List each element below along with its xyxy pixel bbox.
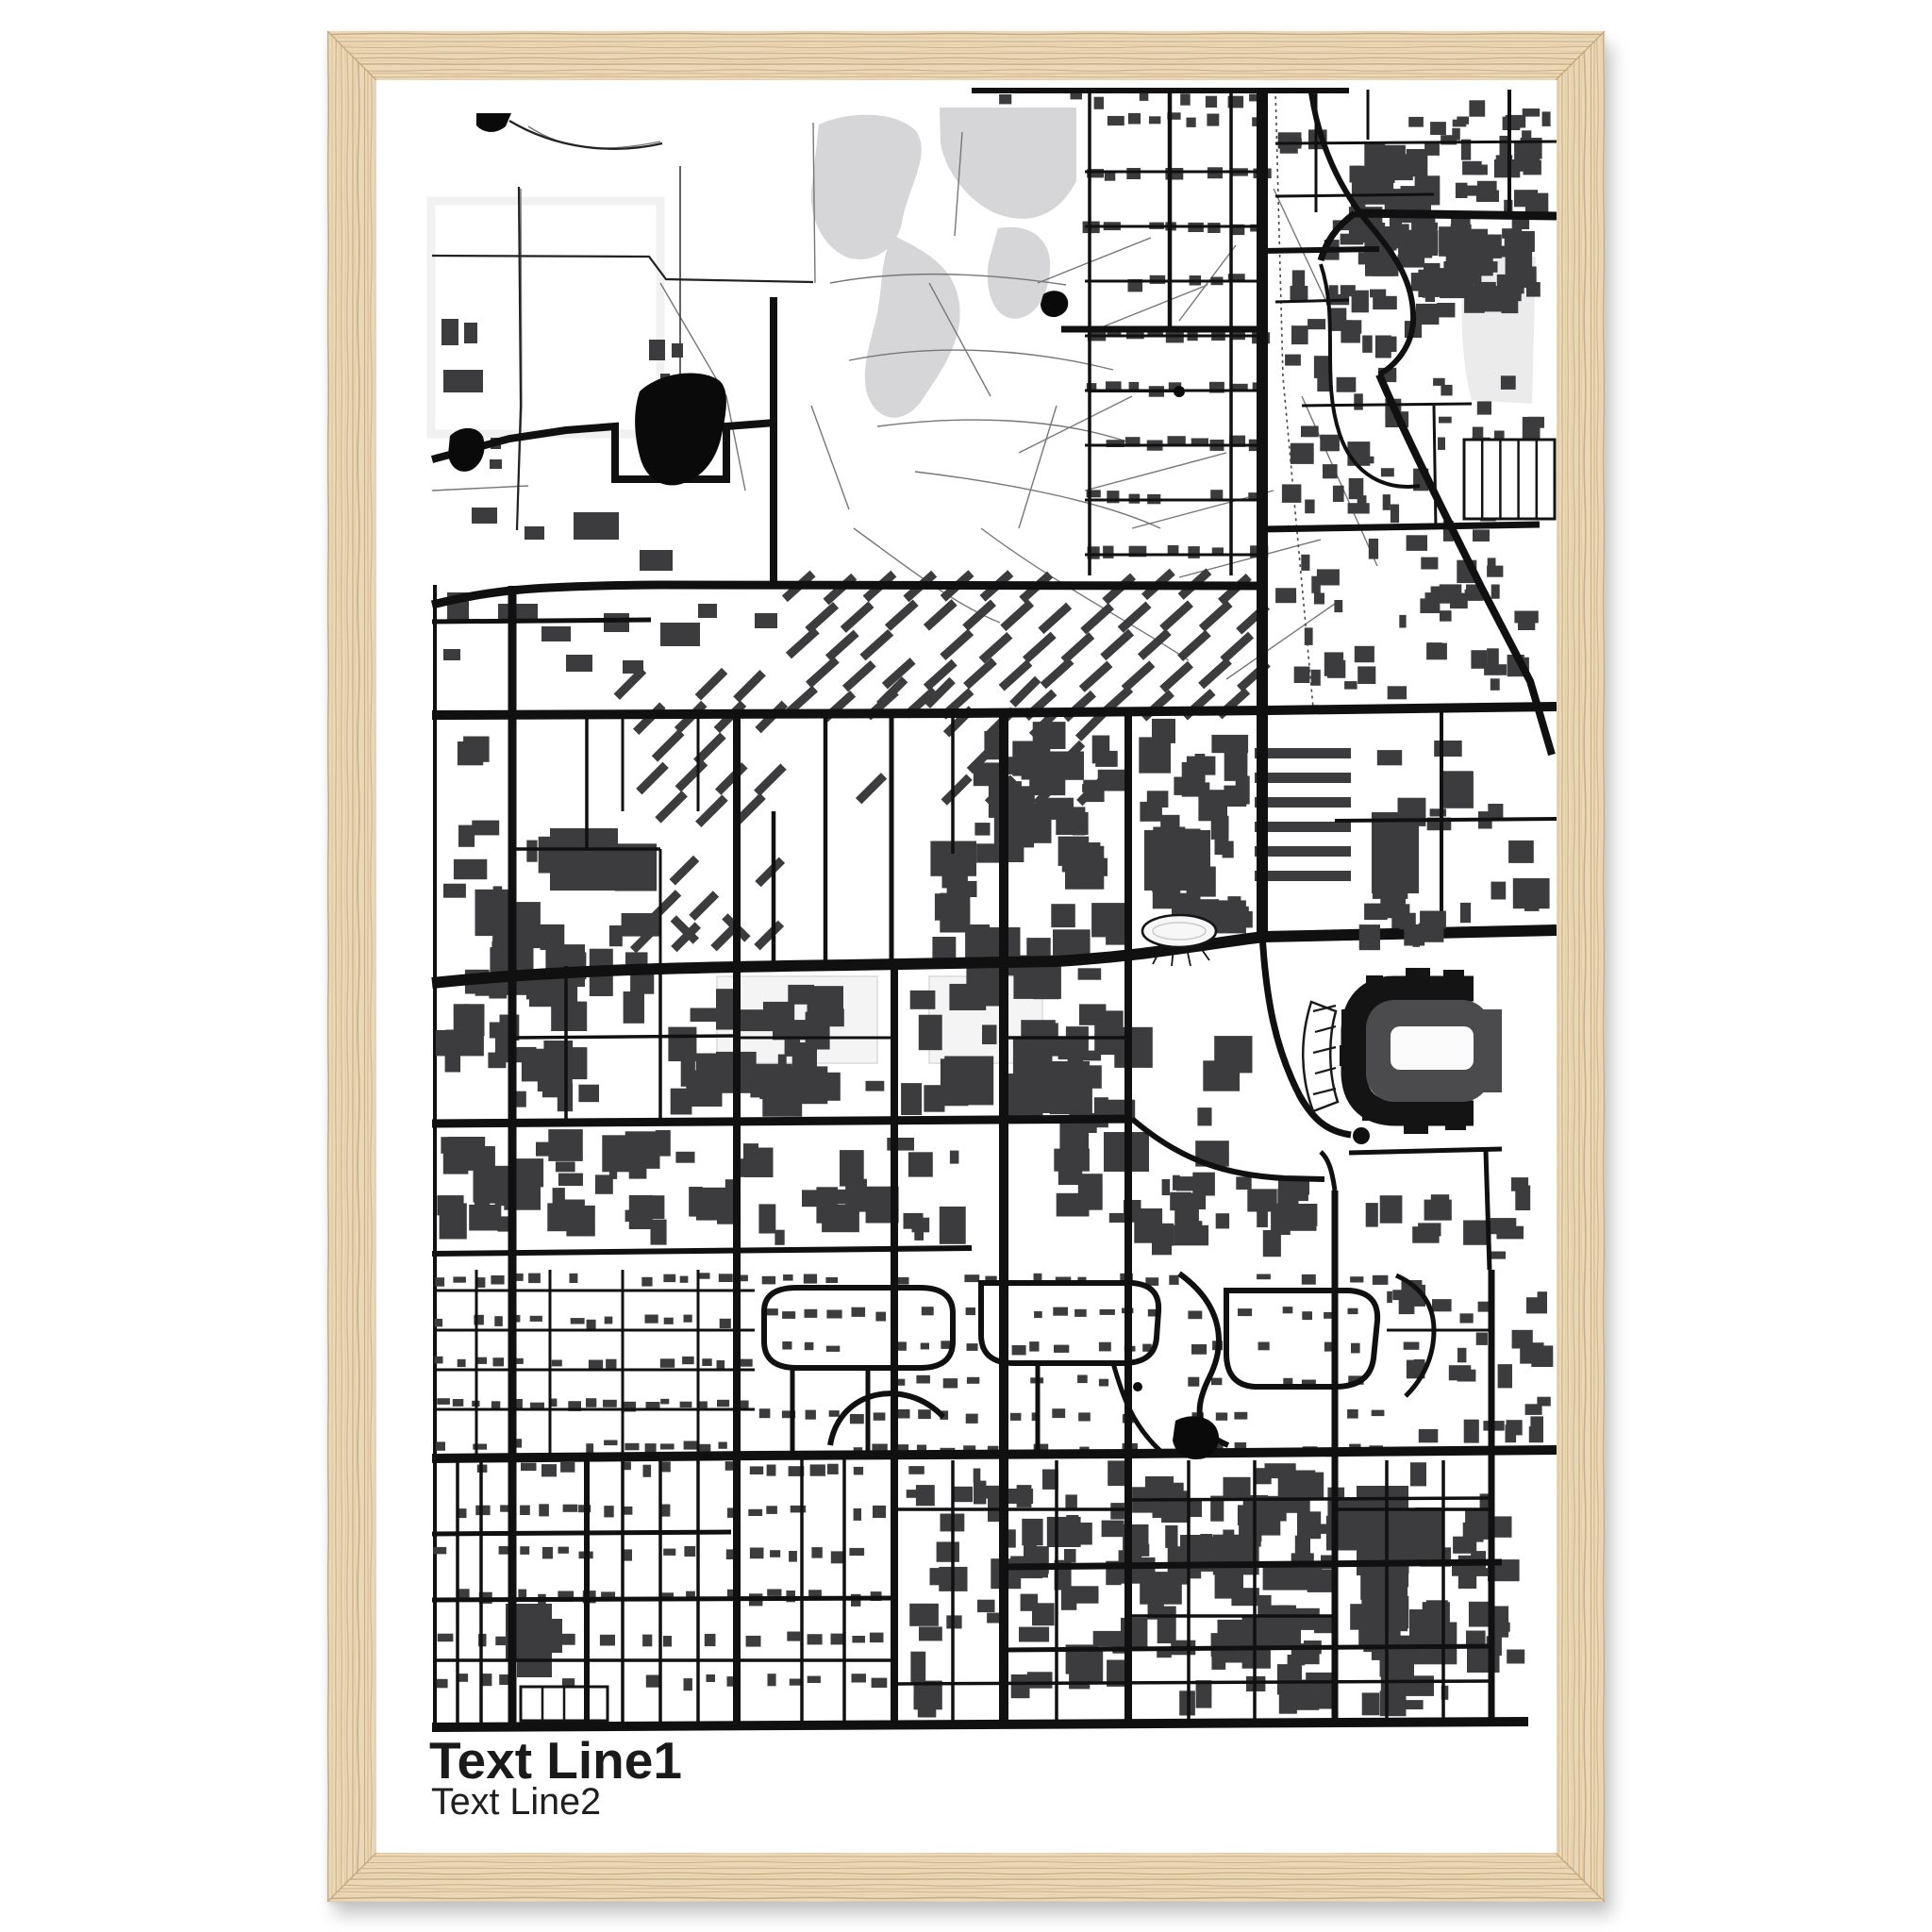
svg-text:Text Line2: Text Line2	[431, 1781, 601, 1823]
